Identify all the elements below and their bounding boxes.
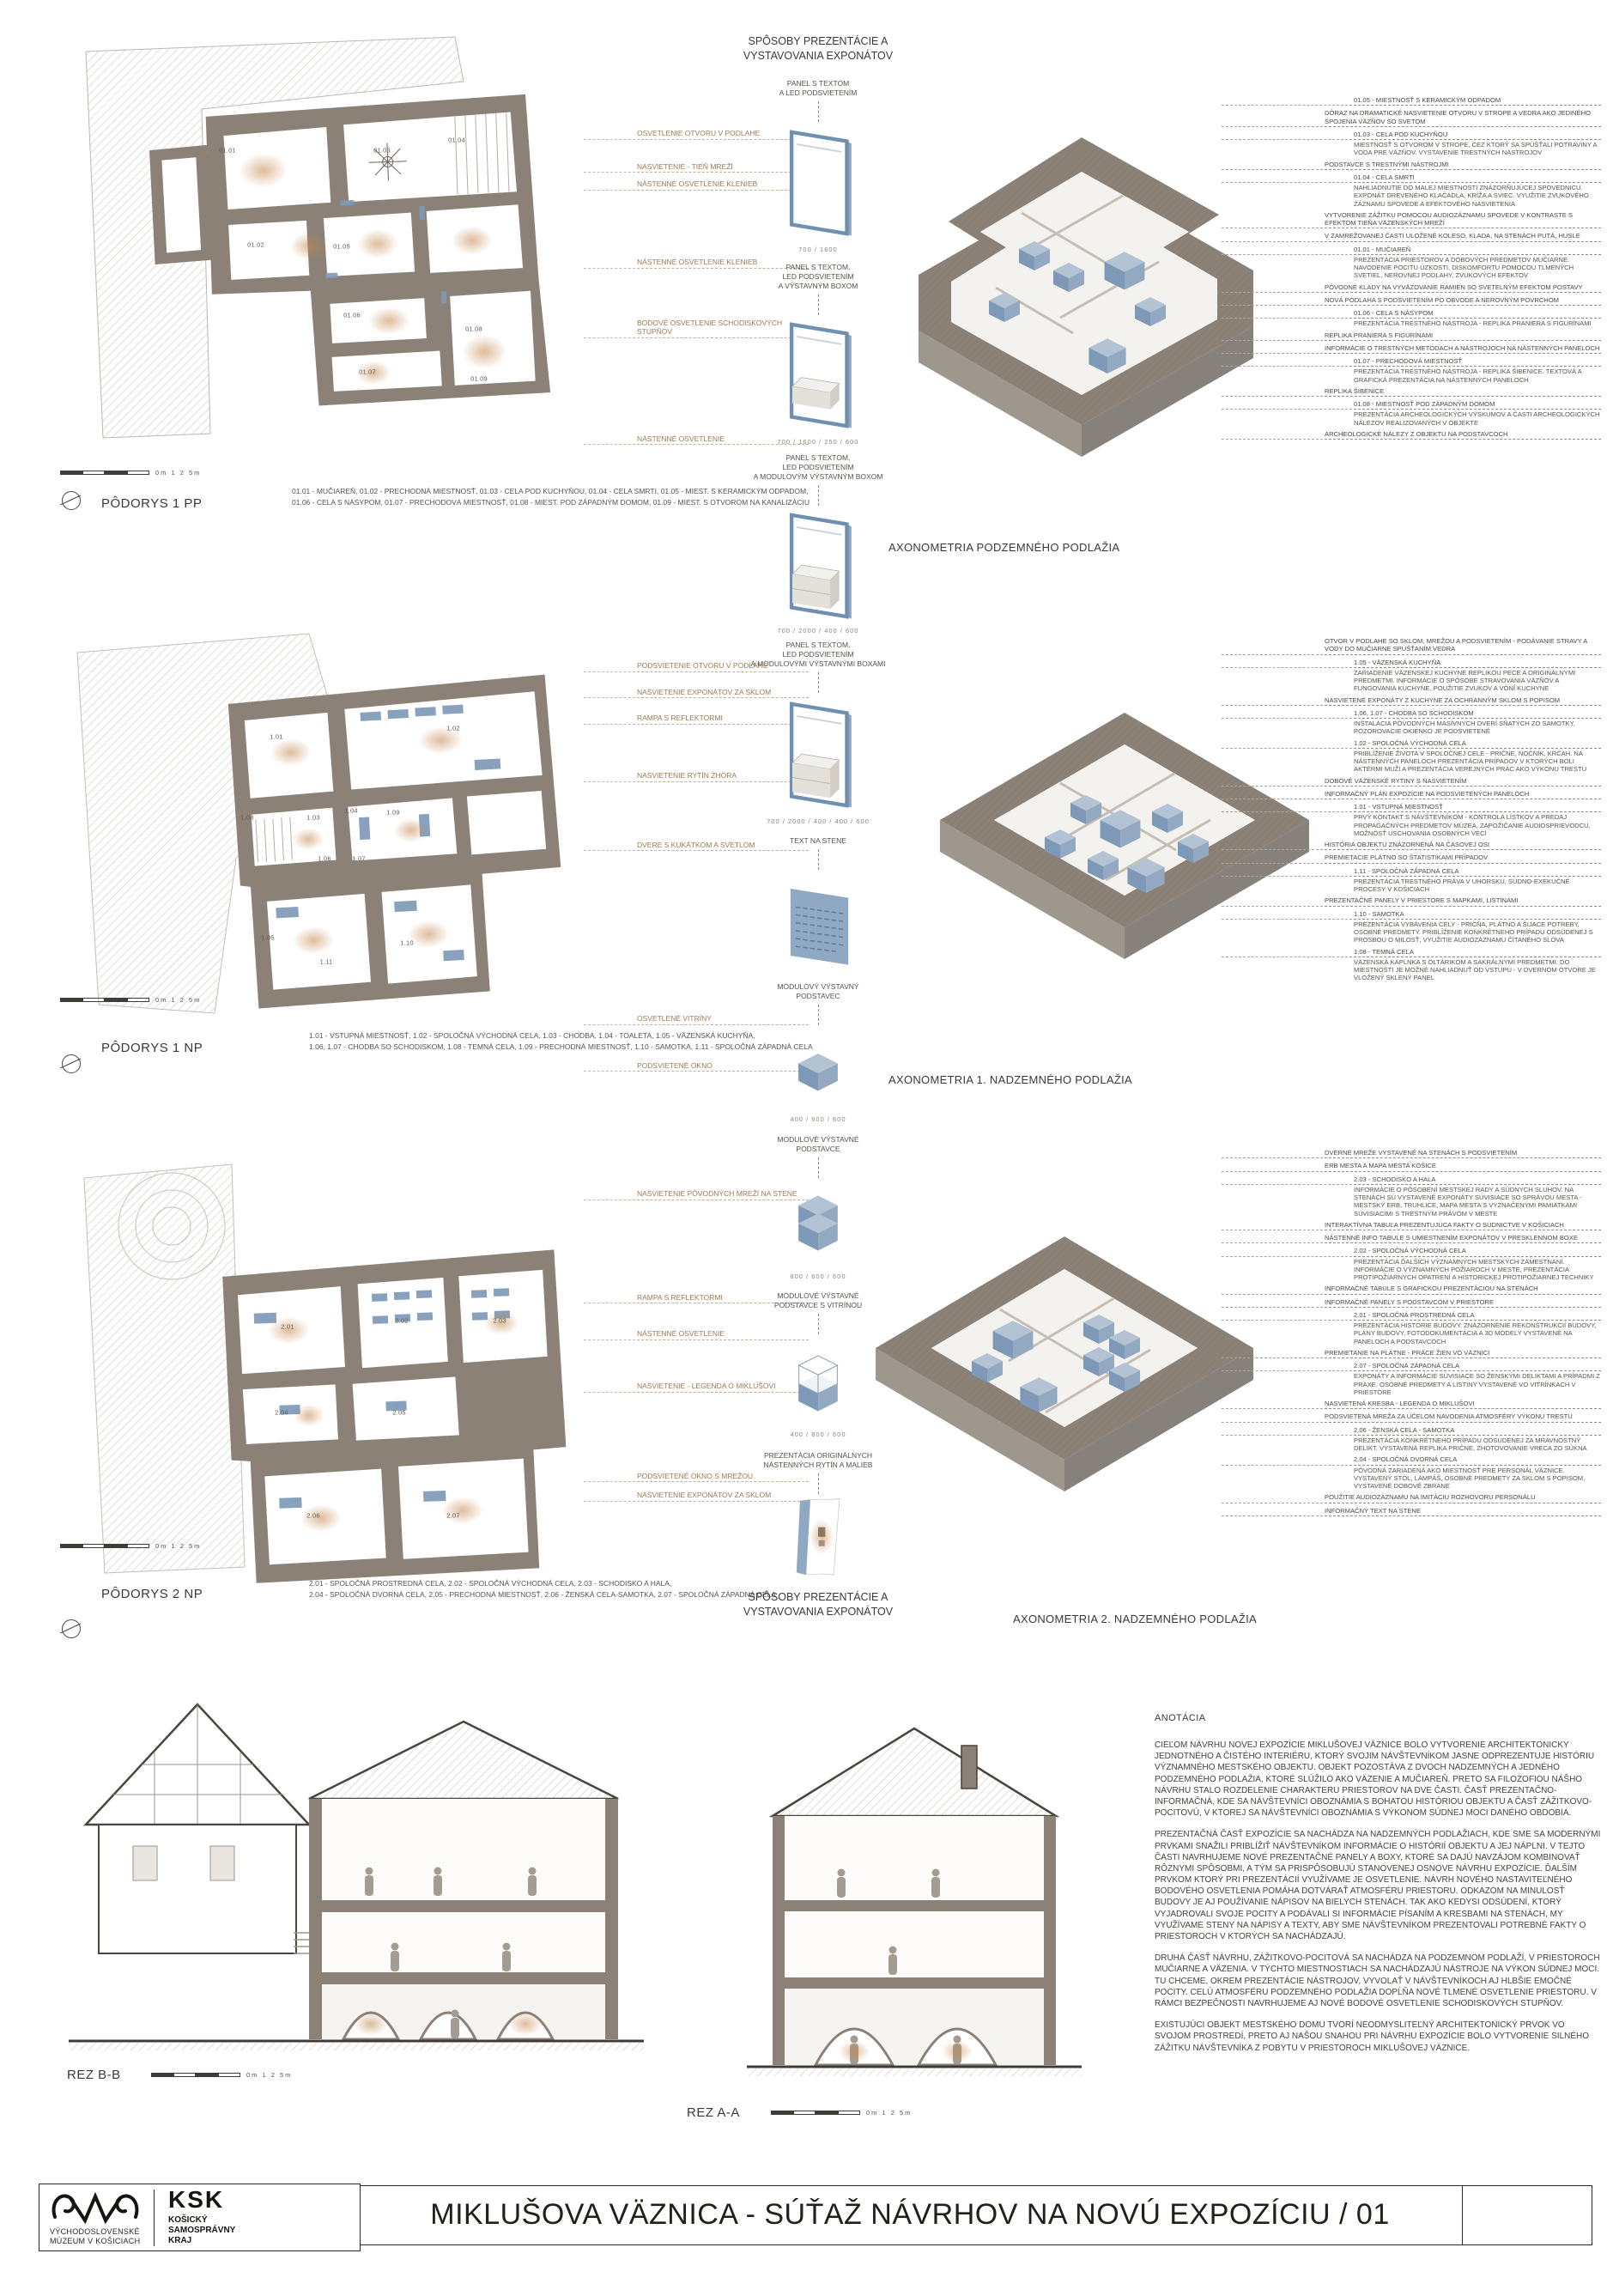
scale-label: 0m 1 2 5m — [155, 469, 201, 477]
plan-title-1pp: PÔDORYS 1 PP — [101, 496, 202, 511]
annotation-item: REPLIKA ŠIBENICE — [1325, 387, 1601, 397]
title-band-end-box — [1462, 2185, 1592, 2245]
annotation-item: NASVIETENÁ KRESBA - LEGENDA O MIKLUŠOVI — [1325, 1400, 1601, 1409]
logo-box: VÝCHODOSLOVENSKÉ MÚZEUM V KOŠICIACH KSK … — [39, 2184, 361, 2251]
museum-name: VÝCHODOSLOVENSKÉ MÚZEUM V KOŠICIACH — [50, 2227, 140, 2247]
annotation-label: OTVOR V PODLAHE SO SKLOM, MREŽOU A PODSV… — [1325, 637, 1601, 655]
plan-title-1np: PÔDORYS 1 NP — [101, 1041, 203, 1055]
annotation-item: 01.06 - CELA S NÁSYPOM PREZENTÁCIA TREST… — [1325, 309, 1601, 328]
axon-annotations-basement: 01.05 - MIESTNOSŤ S KERAMICKÝM ODPADOM D… — [1325, 96, 1601, 440]
annotation-item: OTVOR V PODLAHE SO SKLOM, MREŽOU A PODSV… — [1325, 637, 1601, 655]
annotation-label: 01.03 - CELA POD KUCHYŇOU — [1354, 131, 1601, 140]
annotation-item: ARCHEOLOGICKÉ NÁLEZY Z OBJEKTU NA PODSTA… — [1325, 430, 1601, 440]
annotation-item: 2.02 - SPOLOČNÁ VÝCHODNÁ CELA PREZENTÁCI… — [1325, 1247, 1601, 1281]
annotation-desc: PREZENTÁCIA TRESTNÉHO NÁSTROJA - REPLIKA… — [1354, 319, 1601, 327]
annotation-item: NASVIETENÉ EXPONÁTY Z KUCHYNE ZA OCHRANN… — [1325, 696, 1601, 706]
annotation-paragraph: DRUHÁ ČASŤ NÁVRHU, ZÁŽITKOVO-POCITOVÁ SA… — [1155, 1953, 1603, 2009]
annotation-item: 1.10 - SAMOTKA PREZENTÁCIA VYBAVENIA CEL… — [1325, 910, 1601, 945]
museum-monogram-icon — [48, 2188, 143, 2227]
annotation-desc: NAHLIADNUTIE DO MALEJ MIESTNOSTI ZNÁZORŇ… — [1354, 183, 1601, 208]
floor-plan-1pp-drawing — [52, 30, 609, 464]
annotation-text: CIEĽOM NÁVRHU NOVEJ EXPOZÍCIE MIKLUŠOVEJ… — [1155, 1740, 1603, 2064]
annotation-item: PREZENTAČNÉ PANELY V PRIESTORE S MAPKAMI… — [1325, 896, 1601, 906]
method-dims: 700 / 2000 / 400 / 600 — [711, 627, 925, 635]
annotation-label: 01.01 - MUČIAREŇ — [1354, 246, 1601, 255]
annotation-label: DOBOVÉ VÄZENSKÉ RYTINY S NASVIETENÍM — [1325, 777, 1601, 787]
north-arrow-icon — [62, 1054, 81, 1073]
annotation-item: 01.07 - PRECHODOVÁ MIESTNOSŤ PREZENTÁCIA… — [1325, 357, 1601, 384]
annotation-desc: PRVÝ KONTAKT S NÁVŠTEVNÍKOM - KONTROLA L… — [1354, 812, 1601, 837]
annotation-label: INFORMAČNÝ TEXT NA STENE — [1325, 1507, 1601, 1516]
annotation-label: 2.07 - SPOLOČNÁ ZÁPADNÁ CELA — [1354, 1362, 1601, 1371]
annotation-label: REPLIKA ŠIBENICE — [1325, 387, 1601, 397]
north-arrow-icon — [62, 491, 81, 510]
floor-plan-2np-drawing — [52, 1125, 609, 1588]
annotation-desc: PREZENTÁCIA KONKRÉTNEHO PRÍPADU ODSÚDENE… — [1354, 1436, 1601, 1453]
scale-label: 0m 1 2 5m — [155, 996, 201, 1004]
annotation-desc: PREZENTÁCIA ĎALŠÍCH VÝZNAMNÝCH MESTSKÝCH… — [1354, 1257, 1601, 1282]
annotation-desc: PREZENTÁCIA HISTÓRIE BUDOVY. ZNÁZORNENIE… — [1354, 1321, 1601, 1345]
floor-plan-1np: 1.011.021.031.041.051.061.071.081.091.10… — [52, 592, 609, 1039]
method-panel-box-drawing — [758, 501, 878, 630]
annotation-item: INFORMAČNÝ PLÁN EXPOZÍCIE NA PODSVIETENÝ… — [1325, 790, 1601, 799]
annotation-item: 01.01 - MUČIAREŇ PREZENTÁCIA PRIESTOROV … — [1325, 246, 1601, 280]
method-pedestal-drawing — [758, 1023, 878, 1114]
annotation-label: ARCHEOLOGICKÉ NÁLEZY Z OBJEKTU NA PODSTA… — [1325, 430, 1601, 440]
axon-annotations-second-floor: DVERNÉ MREŽE VYSTAVENÉ NA STENÁCH S PODS… — [1325, 1149, 1601, 1516]
annotation-label: NASVIETENÉ EXPONÁTY Z KUCHYNE ZA OCHRANN… — [1325, 696, 1601, 706]
ksk-logo: KSK — [168, 2186, 224, 2214]
annotation-label: 1.02 - SPOLOČNÁ VÝCHODNÁ CELA — [1354, 739, 1601, 749]
axon-caption-second-floor: AXONOMETRIA 2. NADZEMNÉHO PODLAŽIA — [1013, 1613, 1257, 1625]
annotation-label: 2.03 - SCHODISKO A HALA — [1354, 1175, 1601, 1185]
annotation-desc: PREZENTÁCIA PRIESTOROV A DOBOVÝCH PREDME… — [1354, 255, 1601, 280]
annotation-label: PREMIETANIE NA PLÁTNE - PRÁCE ŽIEN VO VÄ… — [1325, 1349, 1601, 1358]
annotation-label: 1.05 - VÄZENSKÁ KUCHYŇA — [1354, 659, 1601, 668]
annotation-label: INFORMÁCIE O TRESTNÝCH METÓDACH A NÁSTRO… — [1325, 344, 1601, 354]
ksk-name: KOŠICKÝ SAMOSPRÁVNY KRAJ — [168, 2215, 235, 2246]
annotation-item: PODSVIETENÁ MREŽA ZA ÚČELOM NAVODENIA AT… — [1325, 1412, 1601, 1422]
annotation-item: HISTÓRIA OBJEKTU ZNÁZORNENÁ NA ČASOVEJ O… — [1325, 841, 1601, 850]
axon-annotations-first-floor: OTVOR V PODLAHE SO SKLOM, MREŽOU A PODSV… — [1325, 637, 1601, 982]
annotation-desc: PREZENTÁCIA TRESTNÉHO PRÁVA V UHORSKU, S… — [1354, 877, 1601, 894]
annotation-label: PREMIETACIE PLÁTNO SO ŠTATISTIKAMI PRÍPA… — [1325, 853, 1601, 863]
annotation-label: PODSTAVCE S TRESTNÝMI NÁSTROJMI — [1325, 161, 1601, 170]
north-arrow-icon — [62, 1619, 81, 1638]
annotation-desc: PREZENTÁCIA VYBAVENIA CELY - PRIČŇA, PLÁ… — [1354, 920, 1601, 945]
annotation-label: PODSVIETENÁ MREŽA ZA ÚČELOM NAVODENIA AT… — [1325, 1412, 1601, 1422]
annotation-item: DÔRAZ NA DRAMATICKÉ NASVIETENIE OTVORU V… — [1325, 109, 1601, 127]
annotation-paragraph: PREZENTAČNÁ ČASŤ EXPOZÍCIE SA NACHÁDZA N… — [1155, 1829, 1603, 1942]
scale-label: 0m 1 2 5m — [155, 1542, 201, 1550]
methods-header-bottom: SPÔSOBY PREZENTÁCIE A VYSTAVOVANIA EXPON… — [711, 1590, 925, 1619]
annotation-item: INFORMAČNÝ TEXT NA STENE — [1325, 1507, 1601, 1516]
annotation-item: 1.11 - SPOLOČNÁ ZÁPADNÁ CELA PREZENTÁCIA… — [1325, 867, 1601, 894]
annotation-item: V ZAMREŽOVANEJ ČASTI ULOŽENÉ KOLESO, KLA… — [1325, 232, 1601, 241]
annotation-label: 01.08 - MIESTNOSŤ POD ZÁPADNÝM DOMOM — [1354, 400, 1601, 410]
annotation-label: 1.01 - VSTUPNÁ MIESTNOSŤ — [1354, 803, 1601, 812]
axonometry-second-floor-drawing — [841, 1142, 1288, 1588]
annotation-item: 2.07 - SPOLOČNÁ ZÁPADNÁ CELA EXPONÁTY A … — [1325, 1362, 1601, 1396]
annotation-label: 01.05 - MIESTNOSŤ S KERAMICKÝM ODPADOM — [1354, 96, 1601, 106]
annotation-label: 01.04 - CELA SMRTI — [1354, 173, 1601, 183]
annotation-label: VYTVORENIE ZÁŽITKU POMOCOU AUDIOZÁZNAMU … — [1325, 211, 1601, 229]
annotation-item: 01.05 - MIESTNOSŤ S KERAMICKÝM ODPADOM — [1325, 96, 1601, 106]
annotation-item: INFORMAČNÉ TABULE S GRAFICKOU PREZENTÁCI… — [1325, 1285, 1601, 1294]
scale-label: 0m 1 2 5m — [866, 2109, 912, 2117]
annotation-item: PODSTAVCE S TRESTNÝMI NÁSTROJMI — [1325, 161, 1601, 170]
section-aa-label: REZ A-A — [687, 2105, 740, 2120]
annotation-item: NOVÁ PODLAHA S PODSVIETENÍM PO OBVODE A … — [1325, 296, 1601, 306]
annotation-label: POUŽITIE AUDIOZÁZNAMU NA IMITÁCIU ROZHOV… — [1325, 1493, 1601, 1503]
axonometry-basement-drawing — [841, 52, 1322, 519]
annotation-label: PREZENTAČNÉ PANELY V PRIESTORE S MAPKAMI… — [1325, 896, 1601, 906]
annotation-label: 1.10 - SAMOTKA — [1354, 910, 1601, 920]
annotation-item: 1.06, 1.07 - CHODBA SO SCHODISKOM INŠTAL… — [1325, 709, 1601, 736]
annotation-heading: ANOTÁCIA — [1155, 1713, 1205, 1723]
annotation-item: 1.02 - SPOLOČNÁ VÝCHODNÁ CELA PRIBLÍŽENI… — [1325, 739, 1601, 774]
method-item-label: TEXT NA STENE — [711, 836, 925, 870]
annotation-desc: PÔVODNÁ ZARIADENÁ AKO MIESTNOSŤ PRE PERS… — [1354, 1466, 1601, 1491]
museum-name-line2: MÚZEUM V KOŠICIACH — [50, 2237, 140, 2245]
floor-plan-1np-drawing — [52, 592, 609, 1039]
scale-bar: 0m 1 2 5m — [60, 469, 201, 477]
annotation-label: 1.11 - SPOLOČNÁ ZÁPADNÁ CELA — [1354, 867, 1601, 877]
annotation-label: 01.06 - CELA S NÁSYPOM — [1354, 309, 1601, 319]
section-bb-drawing — [52, 1670, 652, 2074]
annotation-label: NÁSTENNÉ INFO TABULE S UMIESTNENÍM EXPON… — [1325, 1234, 1601, 1243]
annotation-item: POUŽITIE AUDIOZÁZNAMU NA IMITÁCIU ROZHOV… — [1325, 1493, 1601, 1503]
annotation-item: DOBOVÉ VÄZENSKÉ RYTINY S NASVIETENÍM — [1325, 777, 1601, 787]
annotation-label: INFORMAČNÝ PLÁN EXPOZÍCIE NA PODSVIETENÝ… — [1325, 790, 1601, 799]
method-dims: 700 / 2000 / 400 / 400 / 600 — [711, 817, 925, 825]
section-bb-label: REZ B-B — [67, 2068, 121, 2082]
method-wall-text-drawing — [758, 869, 878, 981]
annotation-item: ERB MESTA A MAPA MESTA KOŠICE — [1325, 1162, 1601, 1171]
section-aa-drawing — [678, 1704, 1116, 2099]
axonometry-first-floor-drawing — [910, 614, 1322, 1048]
ksk-name-line1: KOŠICKÝ — [168, 2215, 208, 2225]
annotation-item: 01.08 - MIESTNOSŤ POD ZÁPADNÝM DOMOM PRE… — [1325, 400, 1601, 427]
annotation-item: 2.03 - SCHODISKO A HALA INFORMÁCIE O PÔS… — [1325, 1175, 1601, 1218]
method-dims: 400 / 600 / 600 — [711, 1115, 925, 1123]
method-panel-box-drawing — [758, 690, 878, 819]
annotation-item: 2.04 - SPOLOČNÁ DVORNÁ CELA PÔVODNÁ ZARI… — [1325, 1455, 1601, 1490]
scale-bar: 0m 1 2 5m — [60, 1542, 201, 1550]
annotation-desc: MIESTNOSŤ S OTVOROM V STROPE, CEZ KTORÝ … — [1354, 140, 1601, 157]
ksk-name-line3: KRAJ — [168, 2236, 191, 2245]
annotation-item: 01.04 - CELA SMRTI NAHLIADNUTIE DO MALEJ… — [1325, 173, 1601, 208]
scale-bar: 0m 1 2 5m — [771, 2109, 912, 2117]
annotation-label: 2.06 - ŽENSKÁ CELA - SAMOTKA — [1354, 1426, 1601, 1436]
scale-bar: 0m 1 2 5m — [151, 2071, 292, 2079]
annotation-label: NOVÁ PODLAHA S PODSVIETENÍM PO OBVODE A … — [1325, 296, 1601, 306]
floor-plan-2np: 2.012.022.032.042.052.062.07 — [52, 1125, 609, 1588]
annotation-desc: PRIBLÍŽENIE ŽIVOTA V SPOLOČNEJ CELE - PR… — [1354, 749, 1601, 774]
annotation-item: NÁSTENNÉ INFO TABULE S UMIESTNENÍM EXPON… — [1325, 1234, 1601, 1243]
annotation-label: 2.02 - SPOLOČNÁ VÝCHODNÁ CELA — [1354, 1247, 1601, 1256]
annotation-item: 1.08 - TEMNÁ CELA VÄZENSKÁ KAPLNKA S OLT… — [1325, 948, 1601, 982]
method-item-label: PANEL S TEXTOM, LED PODSVIETENÍM A MODUL… — [711, 641, 925, 693]
annotation-label: PÔVODNÉ KLADY NA VYVÄZOVANIE RAMIEN SO S… — [1325, 283, 1601, 293]
annotation-item: PREMIETACIE PLÁTNO SO ŠTATISTIKAMI PRÍPA… — [1325, 853, 1601, 863]
axon-caption-first-floor: AXONOMETRIA 1. NADZEMNÉHO PODLAŽIA — [888, 1073, 1132, 1086]
annotation-item: INFORMÁCIE O TRESTNÝCH METÓDACH A NÁSTRO… — [1325, 344, 1601, 354]
annotation-label: 1.08 - TEMNÁ CELA — [1354, 948, 1601, 957]
annotation-label: V ZAMREŽOVANEJ ČASTI ULOŽENÉ KOLESO, KLA… — [1325, 232, 1601, 241]
annotation-item: 1.01 - VSTUPNÁ MIESTNOSŤ PRVÝ KONTAKT S … — [1325, 803, 1601, 837]
method-item-label: MODULOVÝ VÝSTAVNÝ PODSTAVEC — [711, 982, 925, 1025]
plan-title-2np: PÔDORYS 2 NP — [101, 1587, 203, 1601]
annotation-label: REPLIKA PRANIERA S FIGURÍNAMI — [1325, 331, 1601, 341]
annotation-item: INFORMAČNÉ PANELY S PODSTAVCOM V PRIESTO… — [1325, 1298, 1601, 1308]
annotation-desc: EXPONÁTY A INFORMÁCIE SÚVISIACE SO ŽENSK… — [1354, 1371, 1601, 1396]
board-title: MIKLUŠOVA VÄZNICA - SÚŤAŽ NÁVRHOV NA NOV… — [361, 2198, 1459, 2232]
annotation-label: HISTÓRIA OBJEKTU ZNÁZORNENÁ NA ČASOVEJ O… — [1325, 841, 1601, 850]
annotation-item: 2.06 - ŽENSKÁ CELA - SAMOTKA PREZENTÁCIA… — [1325, 1426, 1601, 1453]
annotation-desc: PREZENTÁCIA TRESTNÉHO NÁSTROJA - REPLIKA… — [1354, 367, 1601, 384]
annotation-item: PREMIETANIE NA PLÁTNE - PRÁCE ŽIEN VO VÄ… — [1325, 1349, 1601, 1358]
annotation-item: 2.01 - SPOLOČNÁ PROSTREDNÁ CELA PREZENTÁ… — [1325, 1311, 1601, 1345]
annotation-paragraph: CIEĽOM NÁVRHU NOVEJ EXPOZÍCIE MIKLUŠOVEJ… — [1155, 1740, 1603, 1819]
axon-caption-basement: AXONOMETRIA PODZEMNÉHO PODLAŽIA — [888, 541, 1119, 554]
annotation-desc: INŠTALÁCIA PÔVODNÝCH MASÍVNYCH DVERÍ SŇA… — [1354, 719, 1601, 736]
annotation-item: 1.05 - VÄZENSKÁ KUCHYŇA ZARIADENIE VÄZEN… — [1325, 659, 1601, 693]
annotation-label: DVERNÉ MREŽE VYSTAVENÉ NA STENÁCH S PODS… — [1325, 1149, 1601, 1158]
logo-divider — [154, 2190, 155, 2246]
annotation-label: INFORMAČNÉ PANELY S PODSTAVCOM V PRIESTO… — [1325, 1298, 1601, 1308]
floor-plan-1pp: 01.0101.0201.0301.0401.0501.0601.0701.08… — [52, 30, 609, 464]
annotation-label: 2.04 - SPOLOČNÁ DVORNÁ CELA — [1354, 1455, 1601, 1465]
annotation-label: ERB MESTA A MAPA MESTA KOŠICE — [1325, 1162, 1601, 1171]
annotation-label: INFORMAČNÉ TABULE S GRAFICKOU PREZENTÁCI… — [1325, 1285, 1601, 1294]
scale-label: 0m 1 2 5m — [246, 2071, 292, 2079]
annotation-label: NASVIETENÁ KRESBA - LEGENDA O MIKLUŠOVI — [1325, 1400, 1601, 1409]
annotation-item: DVERNÉ MREŽE VYSTAVENÉ NA STENÁCH S PODS… — [1325, 1149, 1601, 1158]
annotation-desc: INFORMÁCIE O PÔSOBENÍ MESTSKEJ RADY A SÚ… — [1354, 1185, 1601, 1218]
annotation-item: 01.03 - CELA POD KUCHYŇOU MIESTNOSŤ S OT… — [1325, 131, 1601, 157]
annotation-item: INTERAKTÍVNA TABUĽA PREZENTUJÚCA FAKTY O… — [1325, 1221, 1601, 1230]
museum-name-line1: VÝCHODOSLOVENSKÉ — [50, 2227, 140, 2236]
ksk-name-line2: SAMOSPRÁVNY — [168, 2226, 235, 2235]
annotation-item: VYTVORENIE ZÁŽITKU POMOCOU AUDIOZÁZNAMU … — [1325, 211, 1601, 229]
annotation-desc: VÄZENSKÁ KAPLNKA S OLTÁRIKOM A SAKRÁLNYM… — [1354, 957, 1601, 982]
annotation-label: 2.01 - SPOLOČNÁ PROSTREDNÁ CELA — [1354, 1311, 1601, 1321]
annotation-desc: ZARIADENIE VÄZENSKEJ KUCHYNE REPLIKOU PE… — [1354, 668, 1601, 693]
scale-bar: 0m 1 2 5m — [60, 996, 201, 1004]
annotation-item: REPLIKA PRANIERA S FIGURÍNAMI — [1325, 331, 1601, 341]
annotation-label: INTERAKTÍVNA TABUĽA PREZENTUJÚCA FAKTY O… — [1325, 1221, 1601, 1230]
competition-board: { "sheet": { "title": "MIKLUŠOVA VÄZNICA… — [0, 0, 1607, 2296]
annotation-item: PÔVODNÉ KLADY NA VYVÄZOVANIE RAMIEN SO S… — [1325, 283, 1601, 293]
annotation-label: 01.07 - PRECHODOVÁ MIESTNOSŤ — [1354, 357, 1601, 367]
annotation-paragraph: EXISTUJÚCI OBJEKT MESTSKÉHO DOMU TVORÍ N… — [1155, 2020, 1603, 2054]
annotation-desc: PREZENTÁCIA ARCHEOLOGICKÝCH VÝSKUMOV A Č… — [1354, 410, 1601, 427]
annotation-label: DÔRAZ NA DRAMATICKÉ NASVIETENIE OTVORU V… — [1325, 109, 1601, 127]
annotation-label: 1.06, 1.07 - CHODBA SO SCHODISKOM — [1354, 709, 1601, 719]
